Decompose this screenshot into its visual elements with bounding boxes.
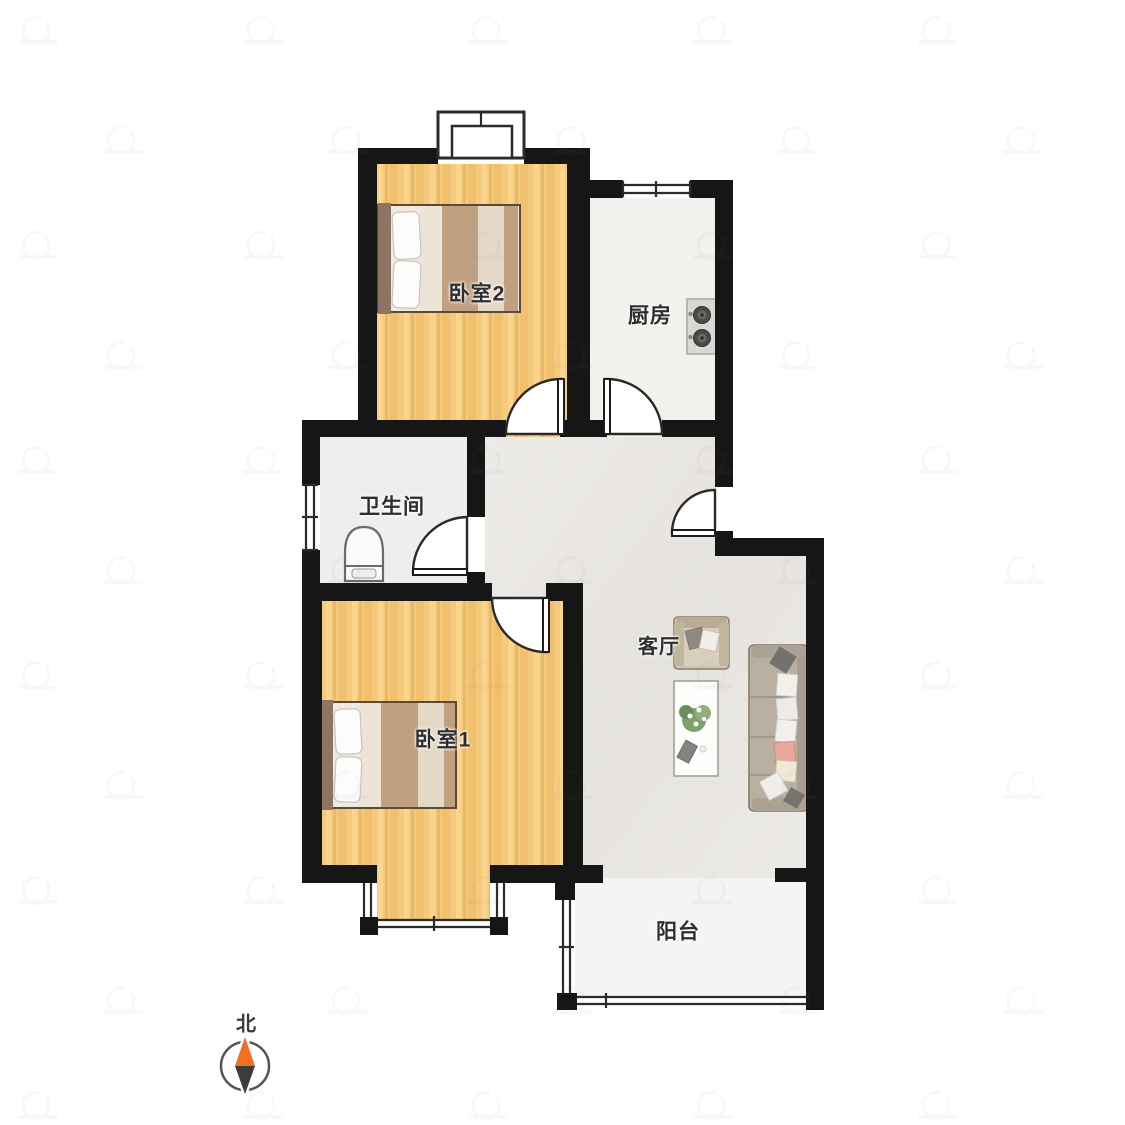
sofa-icon [749, 645, 808, 811]
armchair-icon [674, 617, 729, 669]
bedroom1-bay-floor [377, 883, 490, 920]
compass-north-label: 北 [236, 1008, 256, 1037]
toilet-icon [345, 527, 383, 581]
floor-plan-drawing [0, 0, 1125, 1125]
room-label-kitchen: 厨房 [628, 306, 672, 327]
room-label-living-room: 客厅 [638, 637, 680, 657]
room-label-bedroom1: 卧室1 [415, 730, 472, 751]
floor-plan-canvas: 卧室2 厨房 卫生间 卧室1 客厅 阳台 北 [0, 0, 1125, 1125]
double-bed-icon-bedroom1 [320, 700, 456, 810]
room-label-balcony: 阳台 [656, 922, 700, 943]
stove-icon [687, 299, 716, 354]
bay-window-bedroom2 [438, 112, 524, 158]
room-label-bedroom2: 卧室2 [449, 284, 506, 305]
room-label-bathroom: 卫生间 [359, 497, 425, 518]
coffee-table-icon [674, 681, 718, 776]
